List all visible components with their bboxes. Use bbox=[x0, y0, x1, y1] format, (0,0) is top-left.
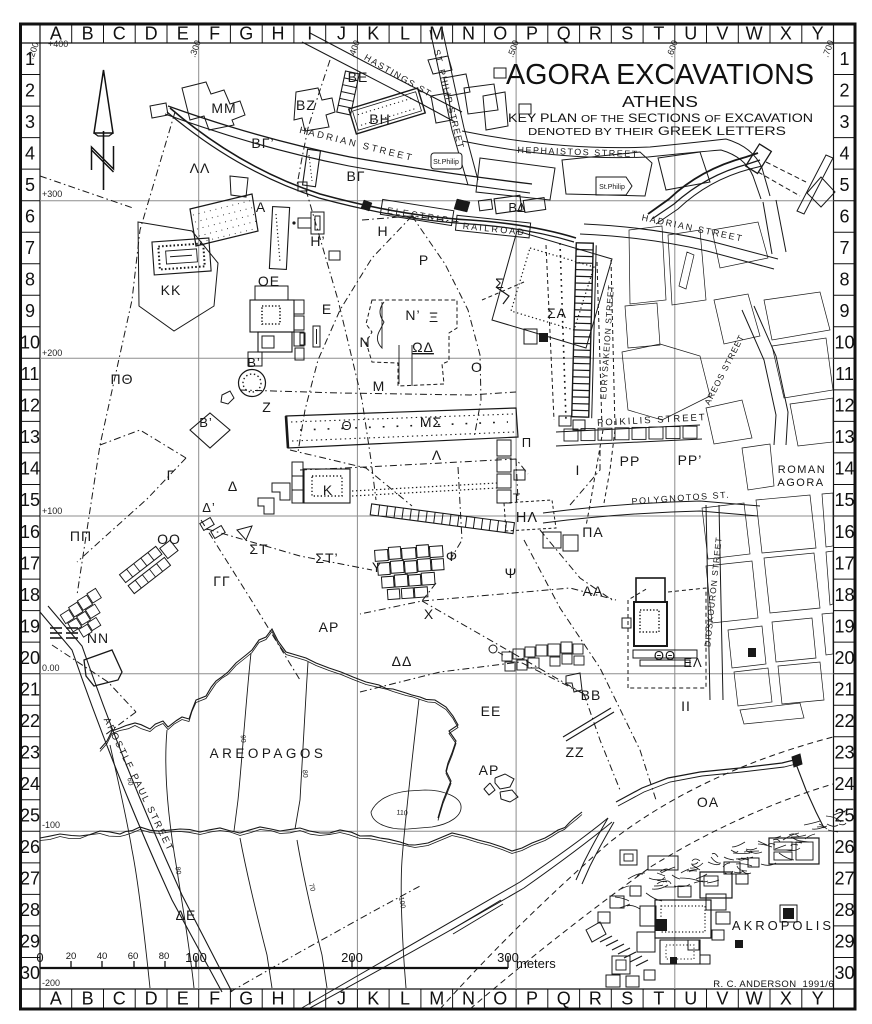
svg-text:AP: AP bbox=[319, 619, 340, 635]
svg-text:25: 25 bbox=[834, 806, 854, 826]
svg-text:12: 12 bbox=[20, 396, 40, 416]
svg-text:+300: +300 bbox=[42, 189, 62, 199]
svg-text:28: 28 bbox=[834, 900, 854, 920]
svg-text:ΗΛ: ΗΛ bbox=[516, 510, 538, 526]
svg-text:5: 5 bbox=[25, 175, 35, 195]
svg-text:Ψ: Ψ bbox=[505, 565, 518, 581]
svg-text:10: 10 bbox=[834, 333, 854, 353]
svg-text:Y: Y bbox=[812, 24, 824, 44]
svg-text:24: 24 bbox=[834, 774, 854, 794]
svg-text:28: 28 bbox=[20, 900, 40, 920]
svg-text:22: 22 bbox=[20, 711, 40, 731]
svg-text:21: 21 bbox=[834, 679, 854, 699]
svg-text:200: 200 bbox=[341, 950, 363, 965]
svg-text:30: 30 bbox=[20, 963, 40, 983]
svg-text:L: L bbox=[400, 989, 410, 1009]
svg-text:2: 2 bbox=[839, 80, 849, 100]
svg-text:W: W bbox=[746, 24, 763, 44]
svg-text:Y: Y bbox=[372, 559, 382, 575]
svg-text:U: U bbox=[684, 989, 697, 1009]
svg-text:ROMAN: ROMAN bbox=[778, 464, 826, 476]
svg-text:X: X bbox=[780, 24, 792, 44]
svg-text:Θ: Θ bbox=[341, 418, 352, 433]
svg-text:E: E bbox=[177, 989, 189, 1009]
svg-text:19: 19 bbox=[20, 616, 40, 636]
svg-text:ΕΛ: ΕΛ bbox=[683, 655, 702, 670]
svg-text:H: H bbox=[272, 989, 285, 1009]
svg-text:3: 3 bbox=[839, 112, 849, 132]
svg-text:Π: Π bbox=[522, 435, 532, 450]
svg-text:ΒΓ’: ΒΓ’ bbox=[251, 135, 274, 151]
svg-text:4: 4 bbox=[839, 143, 849, 163]
svg-text:ΠΑ: ΠΑ bbox=[582, 524, 603, 540]
svg-text:N’: N’ bbox=[405, 307, 420, 323]
svg-text:13: 13 bbox=[834, 427, 854, 447]
svg-text:ΩΔ: ΩΔ bbox=[412, 339, 434, 355]
svg-text:Σ: Σ bbox=[495, 275, 505, 291]
svg-text:29: 29 bbox=[20, 932, 40, 952]
svg-text:M: M bbox=[429, 24, 444, 44]
svg-text:PP’: PP’ bbox=[678, 452, 703, 468]
svg-text:OA: OA bbox=[697, 794, 719, 810]
svg-text:R: R bbox=[589, 989, 602, 1009]
svg-text:T: T bbox=[653, 989, 664, 1009]
svg-text:K: K bbox=[367, 24, 379, 44]
svg-text:KK: KK bbox=[161, 282, 182, 298]
svg-text:27: 27 bbox=[834, 869, 854, 889]
svg-text:J: J bbox=[337, 24, 346, 44]
svg-text:D: D bbox=[145, 24, 158, 44]
svg-text:Y: Y bbox=[812, 989, 824, 1009]
svg-text:BB: BB bbox=[581, 687, 602, 703]
svg-text:D: D bbox=[145, 989, 158, 1009]
svg-text:N: N bbox=[359, 334, 370, 350]
svg-text:G: G bbox=[239, 989, 253, 1009]
svg-text:S: S bbox=[621, 24, 633, 44]
svg-text:Δ: Δ bbox=[228, 478, 238, 494]
svg-text:meters: meters bbox=[516, 956, 556, 971]
svg-text:ΣΤ: ΣΤ bbox=[249, 541, 268, 557]
svg-text:29: 29 bbox=[834, 932, 854, 952]
svg-text:23: 23 bbox=[834, 743, 854, 763]
svg-text:30: 30 bbox=[834, 963, 854, 983]
svg-text:ΔΕ: ΔΕ bbox=[176, 907, 197, 923]
svg-text:V: V bbox=[716, 989, 728, 1009]
svg-text:J: J bbox=[337, 989, 346, 1009]
svg-text:X: X bbox=[780, 989, 792, 1009]
svg-text:16: 16 bbox=[834, 522, 854, 542]
svg-text:60: 60 bbox=[125, 777, 133, 786]
svg-text:P: P bbox=[526, 989, 538, 1009]
svg-text:80: 80 bbox=[301, 770, 309, 778]
svg-text:ΟΕ: ΟΕ bbox=[258, 273, 280, 289]
svg-text:+100: +100 bbox=[42, 506, 62, 516]
svg-text:14: 14 bbox=[20, 459, 40, 479]
svg-text:16: 16 bbox=[20, 522, 40, 542]
svg-text:7: 7 bbox=[839, 238, 849, 258]
svg-text:4: 4 bbox=[25, 143, 35, 163]
svg-text:19: 19 bbox=[834, 616, 854, 636]
svg-text:-200: -200 bbox=[42, 978, 60, 988]
svg-text:B: B bbox=[82, 989, 94, 1009]
svg-text:17: 17 bbox=[834, 553, 854, 573]
svg-text:S: S bbox=[621, 989, 633, 1009]
svg-text:F: F bbox=[209, 989, 220, 1009]
svg-text:Z: Z bbox=[262, 399, 272, 415]
svg-text:5: 5 bbox=[839, 175, 849, 195]
svg-text:22: 22 bbox=[834, 711, 854, 731]
svg-text:10: 10 bbox=[20, 333, 40, 353]
svg-text:ΓΓ: ΓΓ bbox=[213, 573, 230, 589]
svg-text:ΘΘ: ΘΘ bbox=[654, 648, 676, 663]
svg-text:Γ: Γ bbox=[167, 467, 176, 483]
svg-text:Β’: Β’ bbox=[247, 355, 261, 370]
svg-text:P: P bbox=[419, 252, 429, 268]
svg-text:40: 40 bbox=[97, 951, 108, 962]
svg-text:E: E bbox=[322, 301, 332, 317]
svg-text:21: 21 bbox=[20, 679, 40, 699]
svg-text:AREOPAGOS: AREOPAGOS bbox=[210, 746, 327, 761]
svg-text:A: A bbox=[256, 199, 266, 215]
svg-text:O: O bbox=[493, 989, 507, 1009]
svg-text:6: 6 bbox=[839, 206, 849, 226]
svg-text:KEY PLAN OF THE SECTIONS OF EX: KEY PLAN OF THE SECTIONS OF EXCAVATION bbox=[508, 111, 813, 125]
svg-text:0: 0 bbox=[36, 950, 43, 965]
svg-text:G: G bbox=[239, 24, 253, 44]
svg-text:Q: Q bbox=[557, 24, 571, 44]
svg-text:ΟΟ: ΟΟ bbox=[157, 531, 181, 547]
svg-text:O: O bbox=[471, 359, 483, 375]
svg-text:ΜΣ: ΜΣ bbox=[420, 414, 442, 430]
svg-text:M: M bbox=[373, 378, 386, 394]
svg-text:18: 18 bbox=[20, 585, 40, 605]
svg-text:X: X bbox=[424, 606, 434, 622]
svg-text:20: 20 bbox=[20, 648, 40, 668]
svg-text:9: 9 bbox=[25, 301, 35, 321]
svg-text:+200: +200 bbox=[42, 348, 62, 358]
svg-text:E: E bbox=[177, 24, 189, 44]
svg-text:23: 23 bbox=[20, 743, 40, 763]
svg-text:25: 25 bbox=[20, 806, 40, 826]
svg-text:L: L bbox=[400, 24, 410, 44]
svg-text:W: W bbox=[746, 989, 763, 1009]
svg-text:C: C bbox=[113, 989, 126, 1009]
svg-text:Φ: Φ bbox=[446, 548, 458, 564]
svg-text:60: 60 bbox=[128, 951, 139, 962]
svg-text:80: 80 bbox=[159, 951, 170, 962]
svg-text:15: 15 bbox=[834, 490, 854, 510]
svg-text:26: 26 bbox=[834, 837, 854, 857]
svg-text:8: 8 bbox=[25, 270, 35, 290]
svg-text:ΒΓ: ΒΓ bbox=[346, 168, 365, 184]
svg-text:K: K bbox=[323, 482, 333, 498]
svg-text:NN: NN bbox=[87, 630, 109, 646]
svg-text:80: 80 bbox=[173, 866, 181, 875]
svg-text:C: C bbox=[113, 24, 126, 44]
svg-text:BH: BH bbox=[369, 111, 390, 127]
svg-text:ATHENS: ATHENS bbox=[622, 94, 698, 111]
svg-text:-100: -100 bbox=[42, 820, 60, 830]
svg-text:H: H bbox=[377, 223, 388, 239]
svg-text:Λ: Λ bbox=[432, 447, 442, 463]
svg-text:ΔΔ: ΔΔ bbox=[392, 653, 413, 669]
svg-text:AA: AA bbox=[583, 583, 604, 599]
svg-text:ZZ: ZZ bbox=[565, 744, 584, 760]
svg-text:Δ’: Δ’ bbox=[202, 500, 216, 515]
svg-text:20: 20 bbox=[66, 951, 77, 962]
svg-text:V: V bbox=[716, 24, 728, 44]
svg-text:ΛΛ: ΛΛ bbox=[190, 160, 211, 176]
svg-text:2: 2 bbox=[25, 80, 35, 100]
svg-text:N: N bbox=[462, 989, 475, 1009]
svg-text:ΠΠ: ΠΠ bbox=[70, 528, 92, 544]
svg-text:1: 1 bbox=[839, 49, 849, 69]
svg-text:11: 11 bbox=[21, 364, 40, 384]
svg-text:Β’: Β’ bbox=[199, 415, 213, 430]
svg-text:A: A bbox=[50, 989, 62, 1009]
svg-text:K: K bbox=[367, 989, 379, 1009]
svg-text:II: II bbox=[681, 698, 691, 714]
svg-text:20: 20 bbox=[834, 648, 854, 668]
svg-text:6: 6 bbox=[25, 206, 35, 226]
svg-text:26: 26 bbox=[20, 837, 40, 857]
svg-text:17: 17 bbox=[20, 553, 40, 573]
svg-text:ΣΤ’: ΣΤ’ bbox=[315, 550, 338, 566]
svg-text:18: 18 bbox=[834, 585, 854, 605]
svg-text:AGORA: AGORA bbox=[777, 477, 824, 489]
svg-text:24: 24 bbox=[20, 774, 40, 794]
svg-text:ΣΑ: ΣΑ bbox=[547, 305, 567, 321]
svg-text:110: 110 bbox=[396, 810, 408, 818]
svg-text:9: 9 bbox=[839, 301, 849, 321]
svg-text:Q: Q bbox=[557, 989, 571, 1009]
svg-text:27: 27 bbox=[20, 869, 40, 889]
svg-text:0.00: 0.00 bbox=[42, 663, 60, 673]
svg-text:B: B bbox=[82, 24, 94, 44]
svg-text:I: I bbox=[576, 462, 581, 478]
svg-text:ΠΘ: ΠΘ bbox=[111, 371, 134, 387]
svg-text:+400: +400 bbox=[48, 39, 68, 49]
svg-text:11: 11 bbox=[835, 364, 854, 384]
svg-text:3: 3 bbox=[25, 112, 35, 132]
svg-text:H: H bbox=[272, 24, 285, 44]
svg-text:BE: BE bbox=[348, 69, 369, 85]
svg-text:AGORA EXCAVATIONS: AGORA EXCAVATIONS bbox=[506, 59, 814, 91]
svg-text:DENOTED BY THEIR GREEK LETTERS: DENOTED BY THEIR GREEK LETTERS bbox=[528, 124, 786, 138]
svg-text:AP: AP bbox=[479, 762, 500, 778]
svg-text:13: 13 bbox=[20, 427, 40, 447]
svg-text:7: 7 bbox=[25, 238, 35, 258]
svg-text:90: 90 bbox=[239, 735, 247, 743]
svg-text:I: I bbox=[307, 989, 312, 1009]
svg-text:St.Philip: St.Philip bbox=[433, 159, 459, 166]
svg-text:T: T bbox=[653, 24, 664, 44]
svg-text:P: P bbox=[526, 24, 538, 44]
svg-text:14: 14 bbox=[834, 459, 854, 479]
svg-text:N: N bbox=[462, 24, 475, 44]
svg-text:M: M bbox=[429, 989, 444, 1009]
svg-text:PP: PP bbox=[620, 453, 641, 469]
svg-text:R. C. ANDERSON 1991/6: R. C. ANDERSON 1991/6 bbox=[713, 979, 834, 990]
svg-text:H’: H’ bbox=[310, 233, 325, 249]
svg-text:O: O bbox=[493, 24, 507, 44]
svg-text:BZ: BZ bbox=[296, 97, 316, 113]
svg-text:EE: EE bbox=[481, 703, 502, 719]
svg-text:15: 15 bbox=[20, 490, 40, 510]
svg-text:8: 8 bbox=[839, 270, 849, 290]
svg-text:U: U bbox=[684, 24, 697, 44]
svg-text:T: T bbox=[513, 491, 521, 505]
svg-text:St.Philip: St.Philip bbox=[599, 184, 625, 191]
svg-text:R: R bbox=[589, 24, 602, 44]
svg-text:MM: MM bbox=[211, 100, 236, 116]
svg-text:12: 12 bbox=[834, 396, 854, 416]
svg-text:ΒΔ: ΒΔ bbox=[508, 200, 526, 215]
svg-text:F: F bbox=[209, 24, 220, 44]
svg-text:Ξ: Ξ bbox=[429, 309, 439, 325]
svg-text:AKROPOLIS: AKROPOLIS bbox=[732, 918, 834, 933]
